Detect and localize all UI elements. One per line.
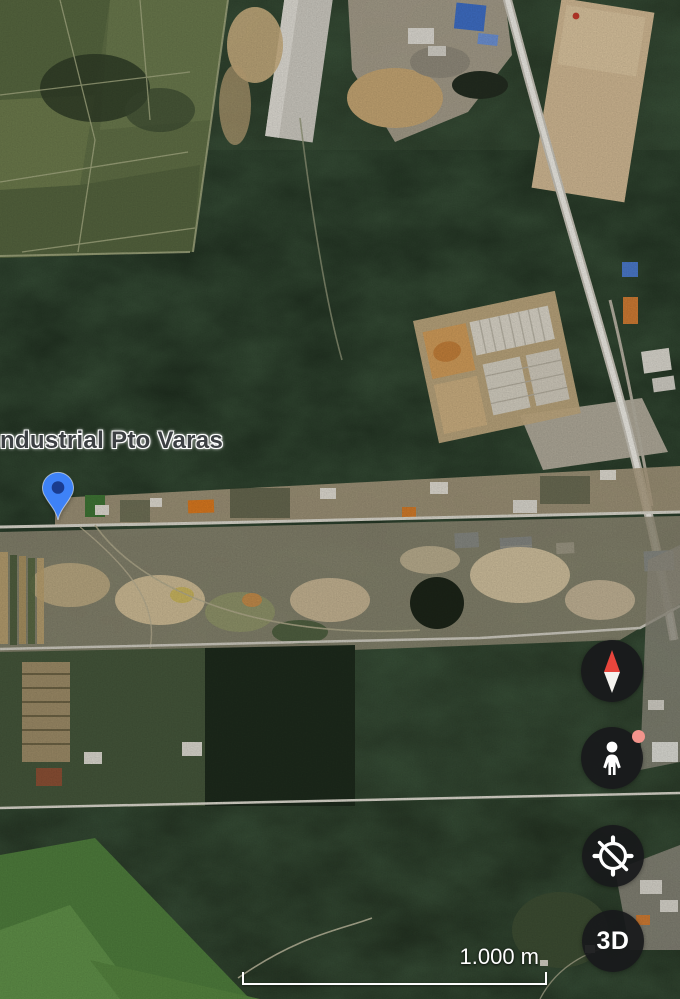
scale-bar-line [242,972,547,985]
map-pin[interactable] [39,465,77,522]
scale-distance-label: 1.000 m [242,944,547,970]
street-view-button[interactable] [581,727,643,789]
compass-button[interactable] [581,640,643,702]
place-label[interactable]: ndustrial Pto Varas [0,427,223,455]
3d-label: 3D [597,927,630,956]
3d-view-button[interactable]: 3D [582,910,644,972]
satellite-imagery[interactable] [0,0,680,999]
tilt-view-button[interactable] [582,825,644,887]
notification-dot [632,730,645,743]
compass-off-icon [582,825,644,887]
google-maps-screen: ndustrial Pto Varas [0,0,680,999]
pin-icon [39,465,77,522]
scale-bar: 1.000 m [242,944,547,985]
grain-overlay [0,0,680,999]
compass-needle-icon [581,640,643,702]
